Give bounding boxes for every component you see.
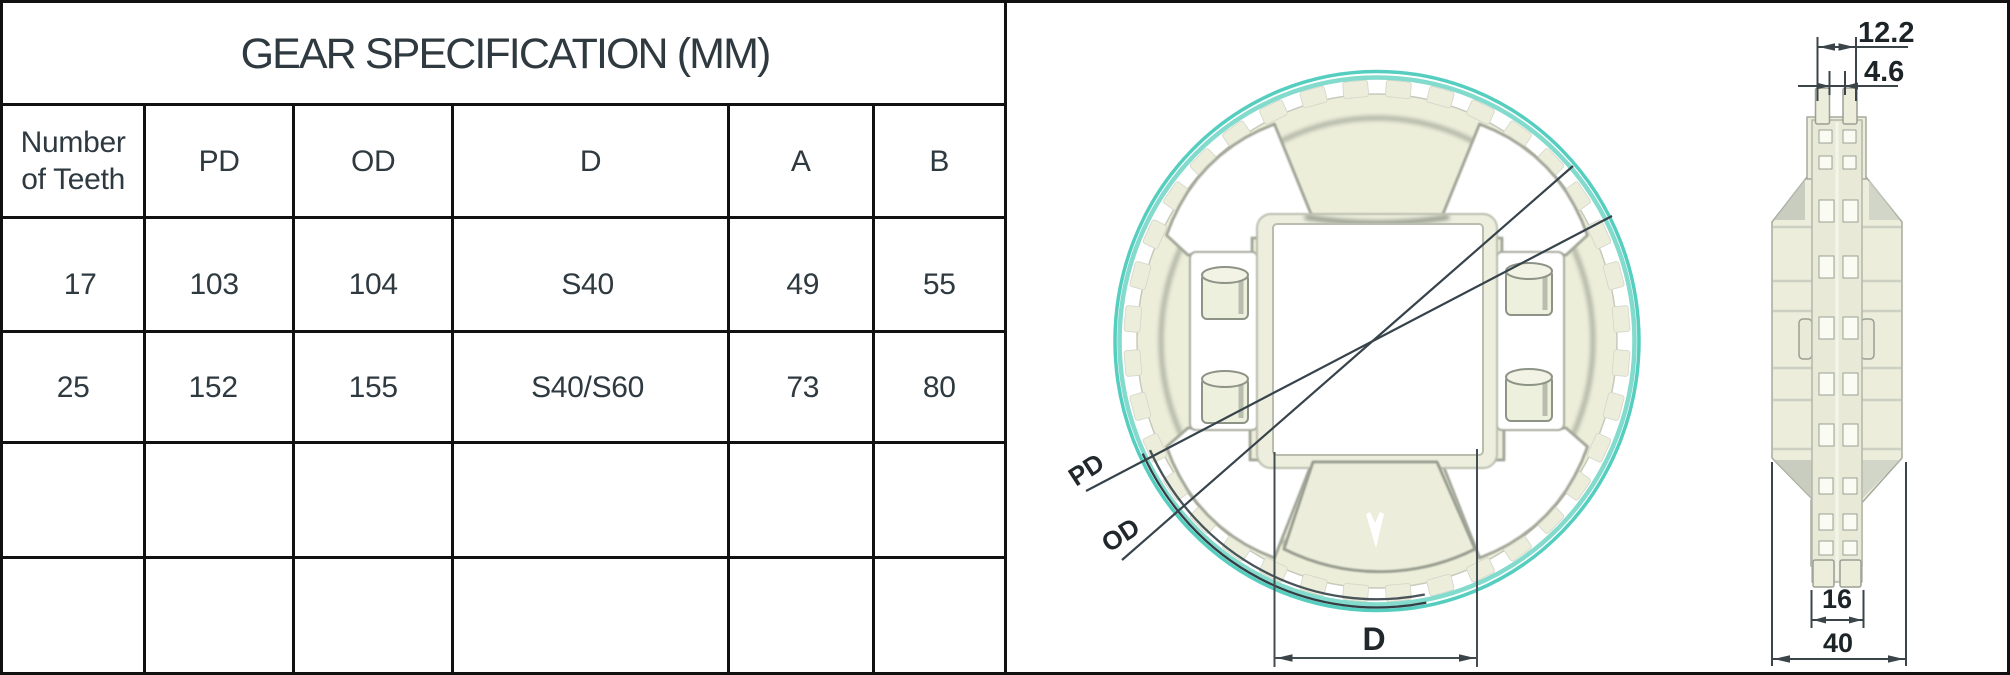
- svg-text:12.2: 12.2: [1858, 17, 1914, 49]
- svg-text:D: D: [1362, 621, 1385, 657]
- svg-text:16: 16: [1822, 584, 1852, 614]
- svg-text:4.6: 4.6: [1864, 56, 1904, 88]
- svg-text:40: 40: [1823, 628, 1853, 658]
- svg-text:PD: PD: [1063, 447, 1110, 492]
- svg-text:OD: OD: [1096, 512, 1145, 558]
